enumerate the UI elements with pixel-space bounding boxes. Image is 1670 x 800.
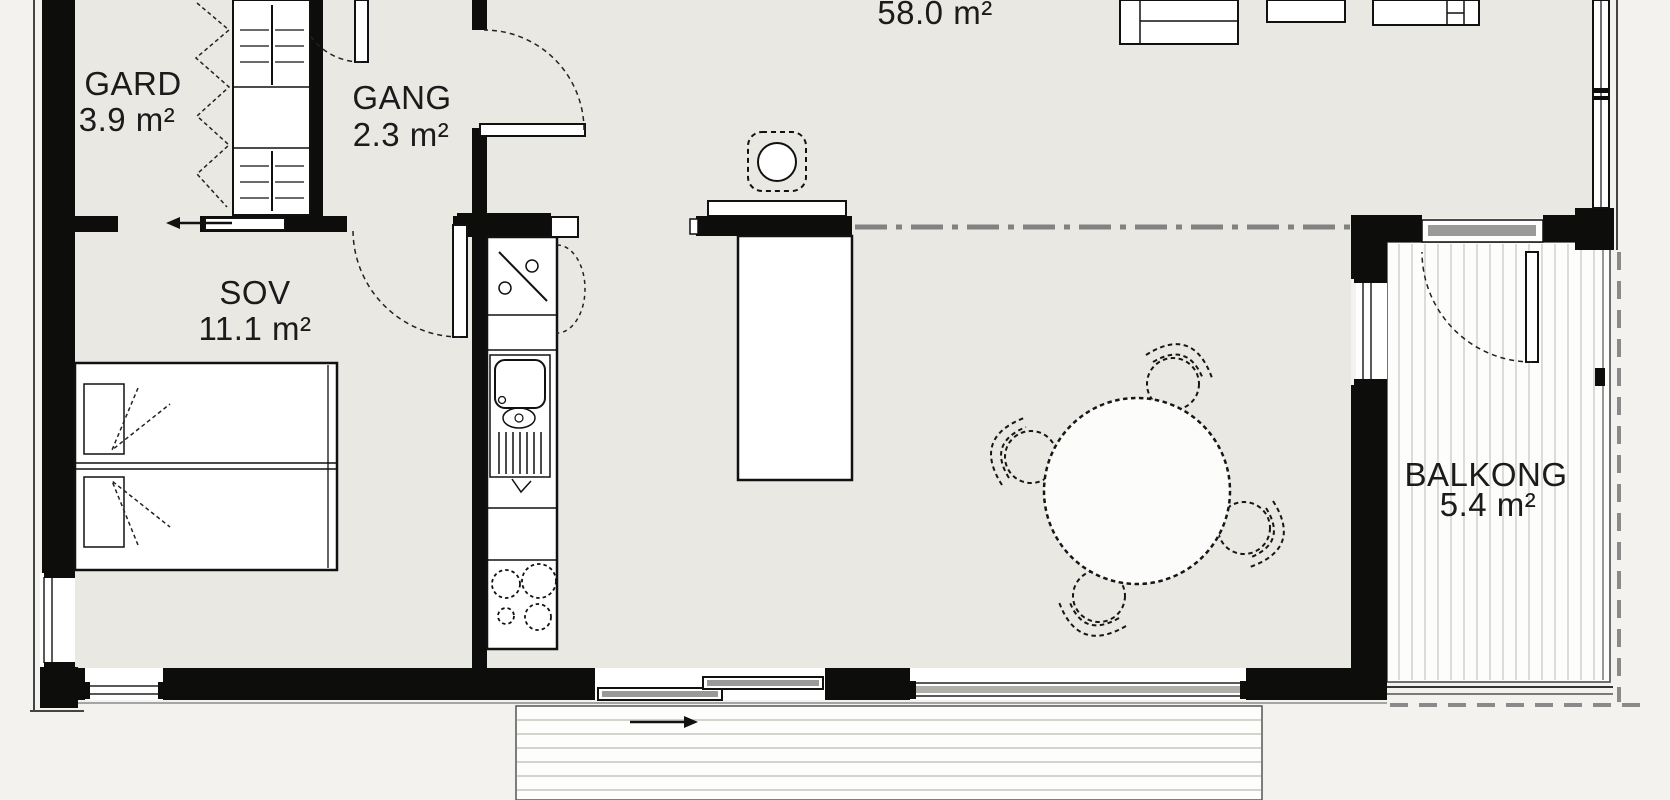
balcony-top-wall-a	[1351, 215, 1422, 242]
room-gard-area: 3.9 m²	[79, 101, 176, 138]
right-corner-wall	[1575, 208, 1614, 250]
left-corner-wall	[40, 667, 78, 708]
gang-living-wall	[472, 128, 487, 216]
sov-wall-a	[60, 216, 118, 232]
dishwasher-rack-icon	[499, 432, 541, 474]
sov-kitchen-wall	[472, 232, 487, 668]
double-bed-icon	[75, 363, 337, 570]
bottom-wall-d	[1246, 668, 1387, 700]
room-sov-area: 11.1 m²	[199, 310, 312, 347]
coffee-table-icon	[1267, 0, 1345, 22]
bottom-wall-c	[825, 668, 910, 700]
left-exterior-wall	[42, 0, 75, 575]
window-icon	[1593, 0, 1609, 208]
pillow-icon	[84, 477, 124, 547]
sofa-icon	[1373, 0, 1479, 25]
floor-plan: GARD 3.9 m² GANG 2.3 m² SOV 11.1 m² 58.0…	[0, 0, 1670, 800]
gang-living-wall-stub	[472, 0, 487, 30]
window-icon	[40, 571, 75, 669]
balcony-left-wall-b	[1351, 385, 1387, 668]
window-icon	[910, 668, 1246, 700]
room-living-area: 58.0 m²	[877, 0, 992, 31]
room-balkong-area: 5.4 m²	[1440, 486, 1537, 523]
balcony-left-wall-a	[1351, 242, 1387, 279]
room-sov-label: SOV	[219, 274, 290, 311]
room-gang-area: 2.3 m²	[353, 116, 450, 153]
bottom-wall-b	[163, 668, 595, 700]
bottom-wall-a	[75, 668, 85, 700]
room-gard-label: GARD	[84, 65, 181, 102]
gard-gang-wall	[310, 0, 323, 216]
terrace-deck-icon	[516, 706, 1262, 800]
kitchen-top-wall	[457, 213, 551, 237]
dining-table-icon	[1044, 398, 1230, 584]
floor-plan-drawing: GARD 3.9 m² GANG 2.3 m² SOV 11.1 m² 58.0…	[0, 0, 1670, 800]
sink-icon	[490, 355, 550, 492]
window-icon	[1354, 277, 1387, 385]
pillow-icon	[84, 384, 124, 454]
window-icon	[85, 668, 163, 700]
sofa-icon	[1120, 0, 1238, 44]
room-gang-label: GANG	[352, 79, 451, 116]
sliding-door-icon	[595, 668, 825, 700]
